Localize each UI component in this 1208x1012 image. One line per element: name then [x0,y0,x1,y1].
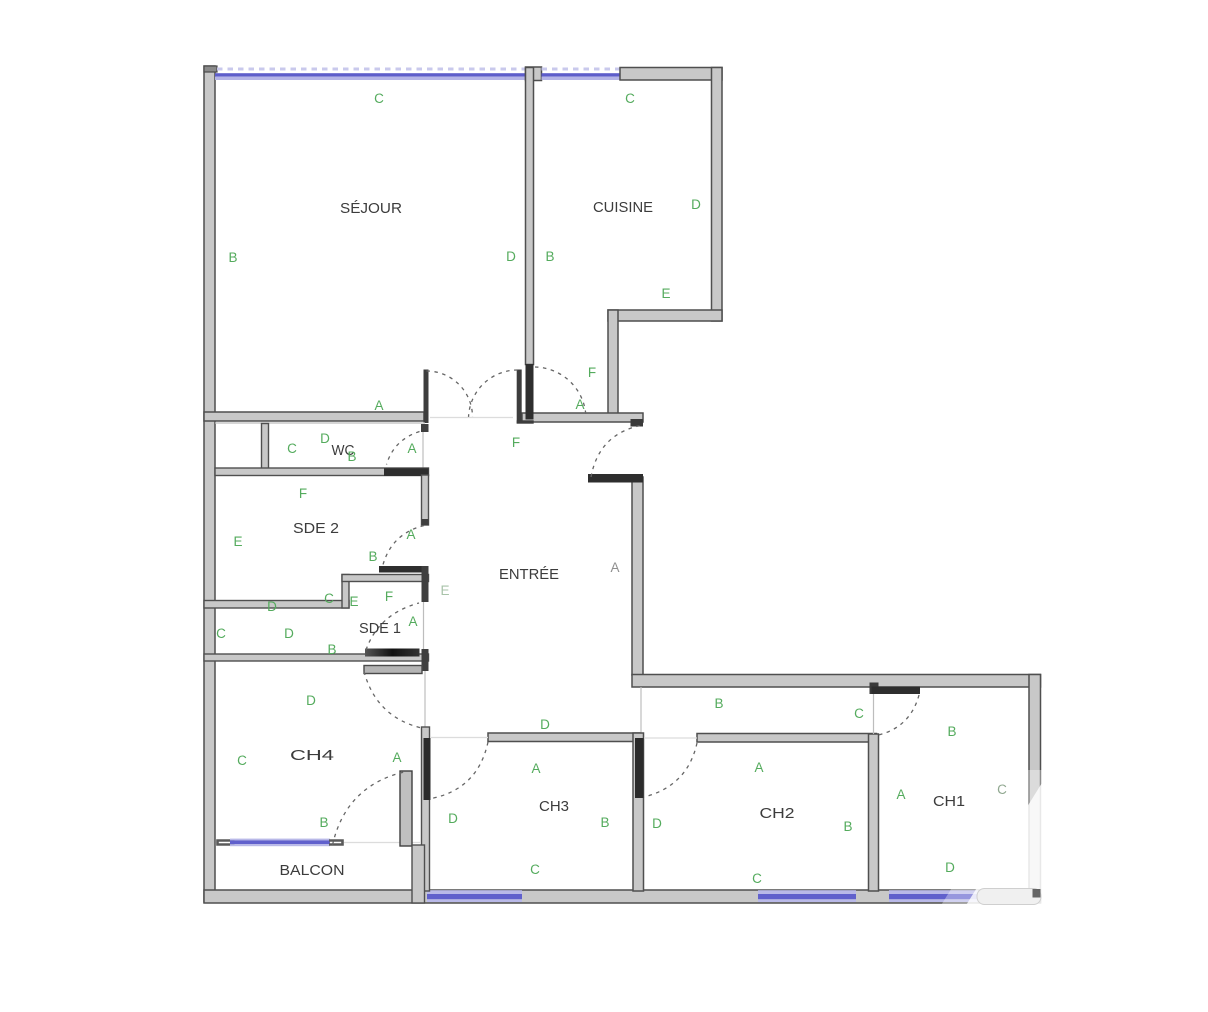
svg-text:ENTRÉE: ENTRÉE [499,566,559,583]
svg-text:B: B [714,696,723,711]
svg-text:A: A [575,397,584,412]
svg-text:A: A [406,527,415,542]
svg-text:C: C [854,706,864,721]
svg-text:A: A [408,614,417,629]
svg-text:SÉJOUR: SÉJOUR [340,200,402,217]
svg-text:A: A [896,787,905,802]
svg-text:C: C [530,862,540,877]
svg-text:C: C [997,782,1007,797]
svg-text:E: E [233,534,242,549]
svg-text:A: A [754,760,763,775]
svg-text:E: E [440,583,449,598]
svg-text:A: A [407,441,416,456]
svg-text:F: F [299,486,307,501]
svg-text:D: D [284,626,294,641]
svg-text:F: F [512,435,520,450]
svg-text:CH2: CH2 [760,806,795,822]
svg-text:CUISINE: CUISINE [593,200,653,216]
svg-text:F: F [588,365,596,380]
svg-text:A: A [610,560,619,575]
svg-text:B: B [843,819,852,834]
svg-text:B: B [327,642,336,657]
svg-text:B: B [545,249,554,264]
svg-text:D: D [448,811,458,826]
svg-text:D: D [945,860,955,875]
svg-text:E: E [661,286,670,301]
svg-text:C: C [216,626,226,641]
svg-text:A: A [392,750,401,765]
svg-text:CH1: CH1 [933,794,965,810]
svg-text:D: D [267,599,277,614]
svg-text:B: B [368,549,377,564]
svg-text:D: D [306,693,316,708]
svg-text:C: C [237,753,247,768]
svg-text:CH3: CH3 [539,799,569,815]
svg-text:BALCON: BALCON [280,863,345,879]
svg-text:C: C [625,91,635,106]
svg-text:B: B [600,815,609,830]
svg-text:CH4: CH4 [290,748,334,764]
svg-text:B: B [347,449,356,464]
svg-text:C: C [287,441,297,456]
svg-text:E: E [349,594,358,609]
svg-text:C: C [752,871,762,886]
svg-text:D: D [540,717,550,732]
svg-text:B: B [319,815,328,830]
svg-text:D: D [506,249,516,264]
svg-text:A: A [374,398,383,413]
svg-text:SDE 1: SDE 1 [359,621,401,637]
svg-text:D: D [320,431,330,446]
svg-text:A: A [531,761,540,776]
svg-text:C: C [324,591,334,606]
svg-text:D: D [652,816,662,831]
svg-text:F: F [385,589,393,604]
svg-text:SDE 2: SDE 2 [293,521,339,537]
svg-text:B: B [228,250,237,265]
svg-text:B: B [947,724,956,739]
svg-text:D: D [691,197,701,212]
svg-text:C: C [374,91,384,106]
